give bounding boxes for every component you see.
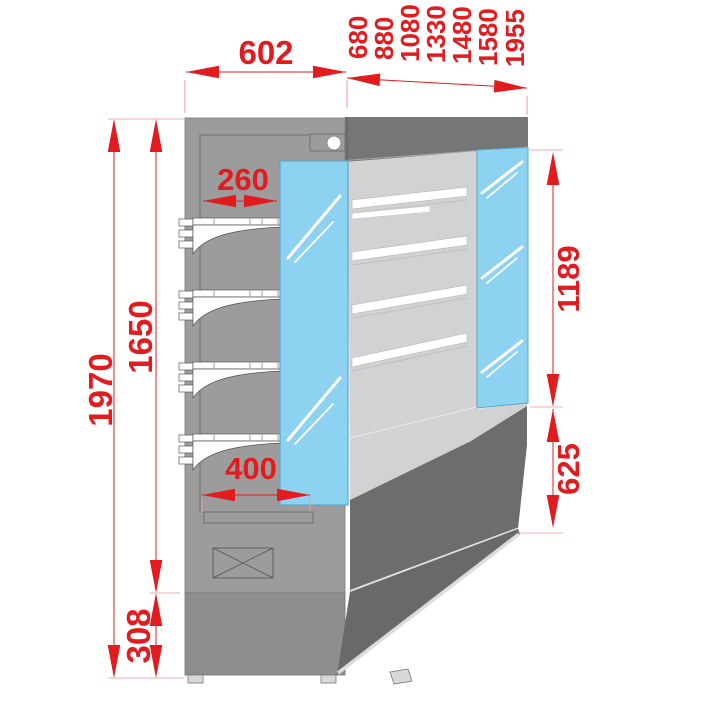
bracket-arm: [193, 290, 283, 297]
bracket-hook: [179, 435, 193, 442]
dim-height-total: 1970: [82, 119, 120, 678]
dim-label-1955: 1955: [500, 9, 530, 67]
dim-label-1580: 1580: [473, 8, 503, 66]
far-glass-panel: [477, 148, 528, 409]
bracket-hook: [179, 219, 193, 226]
arrowhead-left: [347, 74, 380, 87]
bracket-hook: [179, 313, 193, 320]
lamp-circle-icon: [327, 136, 341, 150]
bracket-hook: [179, 385, 193, 392]
plinth-flat: [185, 593, 345, 675]
technical-drawing-page: 602 680 880 1080 1330 1480 1580 1955 197…: [0, 0, 720, 720]
arrowhead-down: [547, 374, 560, 407]
dim-depth-top: 602: [185, 34, 347, 113]
foot: [390, 669, 412, 684]
bracket-hook: [179, 457, 193, 464]
arrowhead-up: [547, 409, 560, 442]
arrowhead-right: [494, 80, 527, 93]
foot: [321, 675, 336, 683]
arrowhead-down: [150, 560, 163, 593]
bracket-arm: [193, 434, 283, 441]
dim-label-1970: 1970: [82, 353, 119, 426]
drawing-canvas: 602 680 880 1080 1330 1480 1580 1955 197…: [0, 0, 720, 720]
dim-height-base-front: 625: [520, 409, 586, 533]
dim-height-body: 1650: [122, 119, 162, 593]
arrowhead-right: [313, 66, 346, 79]
bracket-arm: [193, 218, 283, 225]
dim-height-opening: 1189: [529, 150, 586, 407]
near-glass-panel: [280, 161, 348, 505]
foot: [188, 675, 203, 683]
dim-label-308: 308: [120, 608, 157, 663]
dim-label-602: 602: [238, 34, 293, 71]
dim-length-options: 680 880 1080 1330 1480 1580 1955: [343, 4, 530, 115]
bracket-hook: [179, 363, 193, 370]
bracket-hook: [179, 446, 193, 453]
dim-label-1650: 1650: [122, 300, 159, 373]
dim-label-625: 625: [551, 443, 586, 495]
bracket-arm: [193, 362, 283, 369]
arrowhead-left: [186, 66, 219, 79]
dim-height-plinth: 308: [120, 593, 162, 678]
bracket-hook: [179, 291, 193, 298]
arrowhead-up: [547, 152, 560, 185]
bracket-hook: [179, 302, 193, 309]
arrowhead-down: [547, 495, 560, 528]
bracket-hook: [179, 241, 193, 248]
bottom-tray: [204, 512, 313, 523]
perspective-view: [337, 117, 528, 684]
dim-label-260: 260: [217, 162, 269, 197]
dim-label-1189: 1189: [551, 245, 586, 312]
bracket-hook: [179, 374, 193, 381]
bracket-hook: [179, 230, 193, 237]
arrowhead-up: [150, 119, 163, 152]
arrowhead-up: [108, 119, 121, 152]
arrowhead-down: [108, 645, 121, 678]
dim-label-400: 400: [225, 451, 277, 486]
